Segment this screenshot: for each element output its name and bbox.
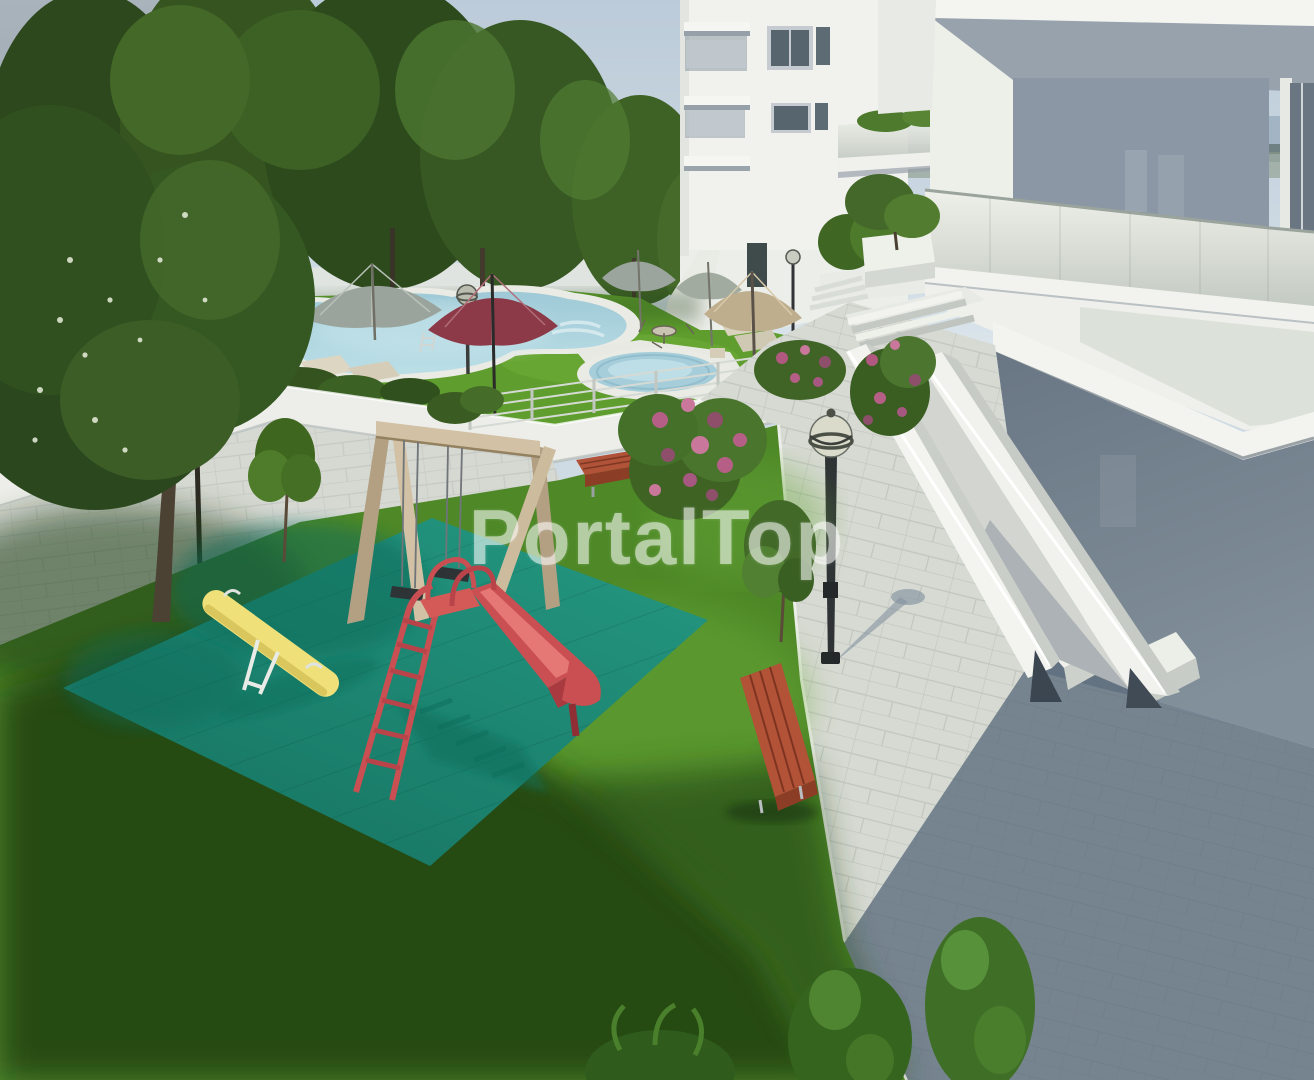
scene [0, 0, 1314, 1080]
flower-bush-fence [754, 340, 846, 400]
corner-pier [878, 0, 936, 114]
property-render-image: PortalTop [0, 0, 1314, 1080]
entrance-lamp-globe [786, 250, 800, 264]
tree-shadow-on-mat [170, 522, 430, 658]
doorway [747, 243, 767, 287]
balcony-glass [686, 40, 746, 68]
